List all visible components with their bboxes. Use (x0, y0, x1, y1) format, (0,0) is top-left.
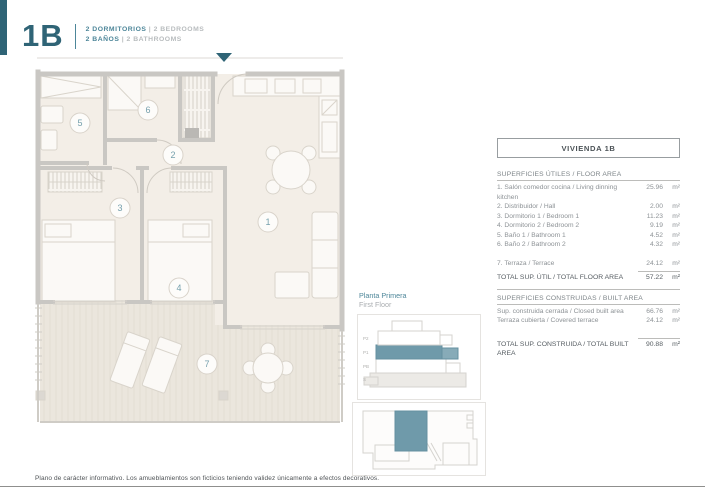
floor-key-title: Planta Primera First Floor (359, 292, 407, 310)
room-number-7: 7 (204, 359, 209, 369)
dining-table (272, 151, 310, 189)
built-area-section: SUPERFICIES CONSTRUIDAS / BUILT AREA Sup… (497, 295, 680, 359)
room-number-2: 2 (170, 150, 175, 160)
elevation-floor-p1-highlight (376, 345, 442, 359)
table-row-terrace: 7. Terraza / Terrace24.12m² (497, 259, 680, 269)
table-row: 5. Baño 1 / Bathroom 14.52m² (497, 231, 680, 241)
level-label: P1 (363, 350, 369, 355)
dwelling-title: VIVIENDA 1B (497, 138, 680, 158)
built-area-heading: SUPERFICIES CONSTRUIDAS / BUILT AREA (497, 295, 680, 305)
floor-area-heading: SUPERFICIES ÚTILES / FLOOR AREA (497, 171, 680, 181)
table-row: 3. Dormitorio 1 / Bedroom 111.23m² (497, 212, 680, 222)
header-divider (75, 24, 76, 49)
highlighted-unit (395, 411, 427, 451)
room-number-5: 5 (77, 118, 82, 128)
elevation-ground (370, 373, 466, 387)
sink (145, 76, 175, 88)
table-row: Sup. construida cerrada / Closed built a… (497, 307, 680, 317)
floorplan-sheet: 1B 2 DORMITORIOS | 2 BEDROOMS 2 BAÑOS | … (0, 0, 705, 498)
table-row: Terraza cubierta / Covered terrace24.12m… (497, 316, 680, 326)
table-row: 4. Dormitorio 2 / Bedroom 29.19m² (497, 221, 680, 231)
table-row: 1. Salón comedor cocina / Living dinning… (497, 183, 680, 202)
room-number-1: 1 (265, 217, 270, 227)
table-row: 6. Baño 2 / Bathroom 24.32m² (497, 240, 680, 250)
sofa (312, 212, 338, 298)
site-key-plan (352, 402, 486, 476)
bathtub (41, 76, 101, 98)
room-number-4: 4 (176, 283, 181, 293)
bathrooms-line: 2 BAÑOS | 2 BATHROOMS (86, 35, 205, 45)
unit-code: 1B (22, 21, 64, 51)
subtotal-rule (638, 338, 680, 339)
column-base (219, 391, 228, 400)
elevation-level-labels: P2 P1 PB S (363, 336, 369, 382)
toilet (41, 130, 57, 150)
ottoman (275, 272, 309, 298)
room-number-6: 6 (145, 105, 150, 115)
terrace-table (253, 353, 283, 383)
floor-plan-drawing: 1 2 3 4 5 6 7 (35, 50, 345, 430)
building-elevation-key: P2 P1 PB S (357, 314, 481, 400)
total-floor-area-row: TOTAL SUP. ÚTIL / TOTAL FLOOR AREA57.22m… (497, 273, 680, 283)
elevation-roof (392, 321, 422, 331)
total-built-area-row: TOTAL SUP. CONSTRUIDA / TOTAL BUILT AREA… (497, 340, 680, 359)
unit-specs: 2 DORMITORIOS | 2 BEDROOMS 2 BAÑOS | 2 B… (86, 21, 205, 45)
level-label: S (363, 377, 366, 382)
area-table: VIVIENDA 1B SUPERFICIES ÚTILES / FLOOR A… (497, 138, 680, 359)
footer-rule (0, 486, 705, 487)
bathrooms-en: | 2 BATHROOMS (122, 36, 182, 43)
level-label: PB (363, 364, 369, 369)
bathrooms-es: 2 BAÑOS (86, 36, 120, 43)
subtotal-rule (638, 271, 680, 272)
elevation-floor-p2 (378, 331, 440, 345)
disclaimer-note: Plano de carácter informativo. Los amueb… (35, 475, 379, 482)
floor-name-en: First Floor (359, 301, 407, 310)
corner-accent-bar (0, 0, 7, 55)
bedrooms-en: | 2 BEDROOMS (149, 26, 205, 33)
table-row: 2. Distribuidor / Hall2.00m² (497, 202, 680, 212)
level-label: P2 (363, 336, 369, 341)
header: 1B 2 DORMITORIOS | 2 BEDROOMS 2 BAÑOS | … (22, 21, 204, 51)
section-divider (497, 289, 680, 290)
floor-area-section: SUPERFICIES ÚTILES / FLOOR AREA 1. Salón… (497, 171, 680, 283)
elevation-floor-pb (376, 359, 446, 373)
sink (41, 106, 63, 123)
bedrooms-es: 2 DORMITORIOS (86, 26, 147, 33)
bedrooms-line: 2 DORMITORIOS | 2 BEDROOMS (86, 25, 205, 35)
room-number-3: 3 (117, 203, 122, 213)
